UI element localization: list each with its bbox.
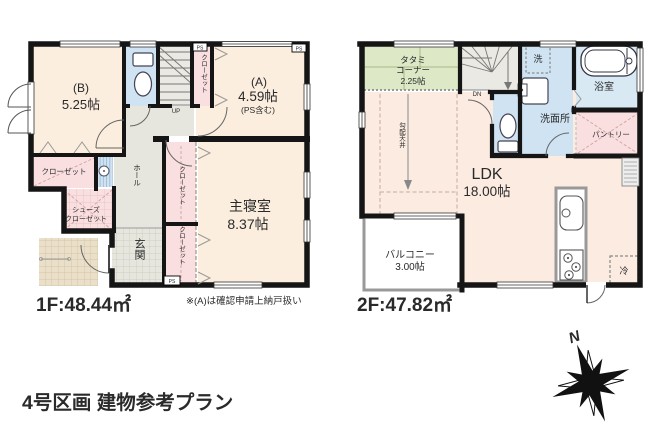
master-size: 8.37帖 bbox=[227, 216, 268, 232]
toilet-2f-fixture bbox=[498, 114, 518, 152]
compass-rose: N bbox=[533, 315, 644, 430]
compass-major-star bbox=[538, 330, 643, 430]
page-title: 4号区画 建物参考プラン bbox=[22, 391, 233, 414]
room-b-name: (B) bbox=[73, 81, 89, 95]
closet-b-label: クローゼット bbox=[42, 166, 87, 176]
ps-label-2: PS bbox=[296, 47, 303, 53]
washbasin-icon bbox=[518, 78, 548, 104]
ps-label-3: PS bbox=[169, 279, 176, 285]
kitchen-counter bbox=[556, 188, 586, 282]
up-label: UP bbox=[172, 109, 180, 115]
floorplan-canvas: PS PS PS (B) 5.25帖 (A) 4.59帖 (PS含む) 主寝室 … bbox=[0, 0, 650, 430]
washroom-label: 洗面所 bbox=[540, 113, 570, 125]
ldk-name: LDK bbox=[471, 166, 502, 183]
basin-nook-fixture bbox=[99, 166, 109, 176]
hall-label: ホール bbox=[132, 164, 141, 187]
ps-label-1: PS bbox=[197, 46, 204, 52]
fridge-label: 冷 bbox=[619, 265, 628, 276]
floor1-plan: PS PS PS (B) 5.25帖 (A) 4.59帖 (PS含む) 主寝室 … bbox=[8, 41, 310, 316]
floor1-area-label: 1F:48.44㎡ bbox=[36, 293, 131, 316]
porch-grid bbox=[39, 238, 98, 286]
bathtub-icon bbox=[581, 46, 637, 76]
tatami-line1: タタミ bbox=[400, 55, 426, 65]
tatami-size: 2.25帖 bbox=[400, 76, 426, 86]
laundry-label: 洗 bbox=[533, 53, 542, 64]
stairs-1f-floor bbox=[158, 44, 192, 106]
dn-label: DN bbox=[473, 92, 482, 98]
entrance-label: 玄関 bbox=[133, 237, 146, 260]
floorplan-page: PS PS PS (B) 5.25帖 (A) 4.59帖 (PS含む) 主寝室 … bbox=[0, 0, 650, 430]
bath-label: 浴室 bbox=[594, 80, 614, 93]
kitchen-door-gap bbox=[586, 282, 606, 288]
compass-north-label: N bbox=[566, 327, 583, 347]
room-a-sub: (PS含む) bbox=[241, 105, 275, 115]
shoes-closet-line2: クローゼット bbox=[65, 214, 107, 223]
room-a-name: (A) bbox=[251, 75, 267, 89]
pantry-label: パントリー bbox=[592, 130, 630, 139]
floor1-note: ※(A)は確認申請上納戸扱い bbox=[186, 295, 302, 307]
ldk-size: 18.00帖 bbox=[463, 184, 510, 199]
room-a-size: 4.59帖 bbox=[238, 89, 278, 104]
master-name: 主寝室 bbox=[229, 198, 271, 214]
tatami-line2: コーナー bbox=[396, 65, 430, 75]
floor2-area-label: 2F:47.82㎡ bbox=[357, 293, 452, 316]
balcony-size: 3.00帖 bbox=[395, 260, 424, 273]
floor2-plan: タタミ コーナー 2.25帖 LDK 18.00帖 バルコニー 3.00帖 洗 … bbox=[357, 41, 643, 316]
balcony-name: バルコニー bbox=[385, 249, 435, 261]
casement-window-icon bbox=[8, 84, 31, 133]
room-b-size: 5.25帖 bbox=[62, 97, 100, 112]
louver-window-icon bbox=[622, 158, 639, 186]
shoes-closet-line1: シューズ bbox=[72, 205, 100, 214]
